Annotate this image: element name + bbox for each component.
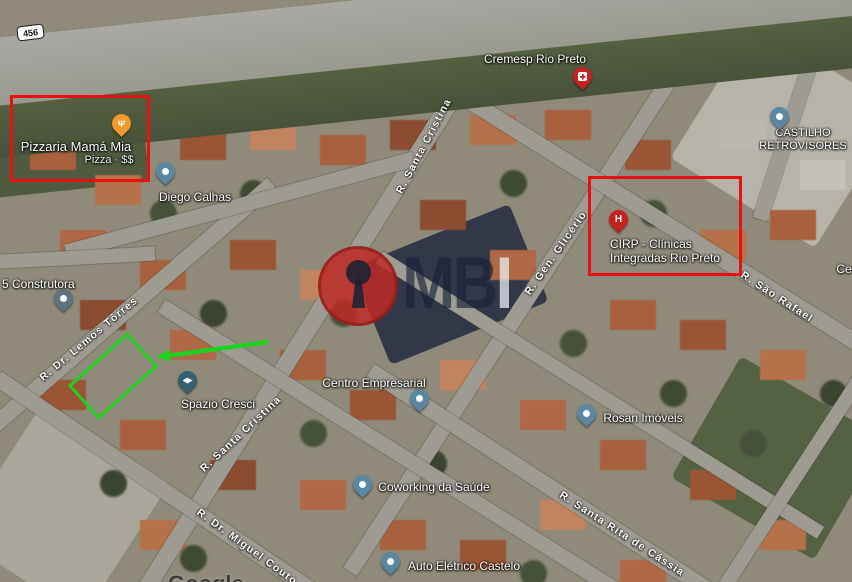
dot-icon (358, 480, 368, 490)
red-highlight-box-pizzaria (10, 95, 150, 182)
dot-icon (582, 409, 592, 419)
place-pin-icon[interactable] (349, 471, 376, 498)
mbi-logo-circle (318, 246, 398, 326)
poi-label-coworking[interactable]: Coworking da Saúde (378, 480, 489, 494)
poi-label-diego-calhas[interactable]: Diego Calhas (159, 190, 231, 204)
health-pin-icon[interactable] (569, 63, 596, 90)
mbi-watermark: M B I (318, 246, 510, 326)
poi-label-spazio-cresci[interactable]: Spazio Cresci (181, 397, 255, 411)
mbi-letters: M B I (402, 246, 510, 320)
green-arrow (150, 330, 280, 372)
poi-label-centro-empresarial[interactable]: Centro Empresarial (322, 376, 425, 390)
map-tree-texture (0, 0, 27, 27)
poi-label-partial-ce: Ce (836, 262, 851, 276)
keyhole-icon (346, 260, 371, 285)
place-pin-icon[interactable] (377, 548, 404, 575)
satellite-map[interactable]: 456 R. Santa Cristina R. Santa Cristina … (0, 0, 852, 582)
dot-icon (415, 394, 425, 404)
poi-label-cremesp[interactable]: Cremesp Rio Preto (484, 52, 586, 66)
medical-cross-icon (573, 67, 592, 86)
poi-label-rosan-imoveis[interactable]: Rosan Imóveis (603, 411, 682, 425)
dot-icon (775, 112, 785, 122)
poi-label-castilho[interactable]: CASTILHO RETROVISORES (759, 127, 846, 153)
place-pin-icon[interactable] (152, 158, 179, 185)
poi-name-line1: CASTILHO (775, 127, 830, 139)
google-logo[interactable]: Google (168, 571, 244, 582)
street-label-gen-glicerio: R. Gen. Glicério (523, 209, 590, 297)
letter-m: M (402, 246, 452, 320)
letter-b: B (452, 246, 495, 320)
letter-i: I (496, 246, 511, 320)
place-pin-icon[interactable] (573, 400, 600, 427)
street-label-sao-rafael: R. São Rafael (739, 269, 816, 325)
road (0, 247, 155, 270)
poi-name-line2: RETROVISORES (759, 140, 846, 152)
poi-label-auto-eletrico[interactable]: Auto Elétrico Castelo (408, 559, 520, 573)
red-highlight-box-cirp (588, 176, 742, 276)
dot-icon (161, 167, 171, 177)
graduation-cap-icon (178, 371, 197, 390)
dot-icon (59, 294, 69, 304)
route-shield-number: 456 (22, 27, 38, 39)
dot-icon (386, 557, 396, 567)
